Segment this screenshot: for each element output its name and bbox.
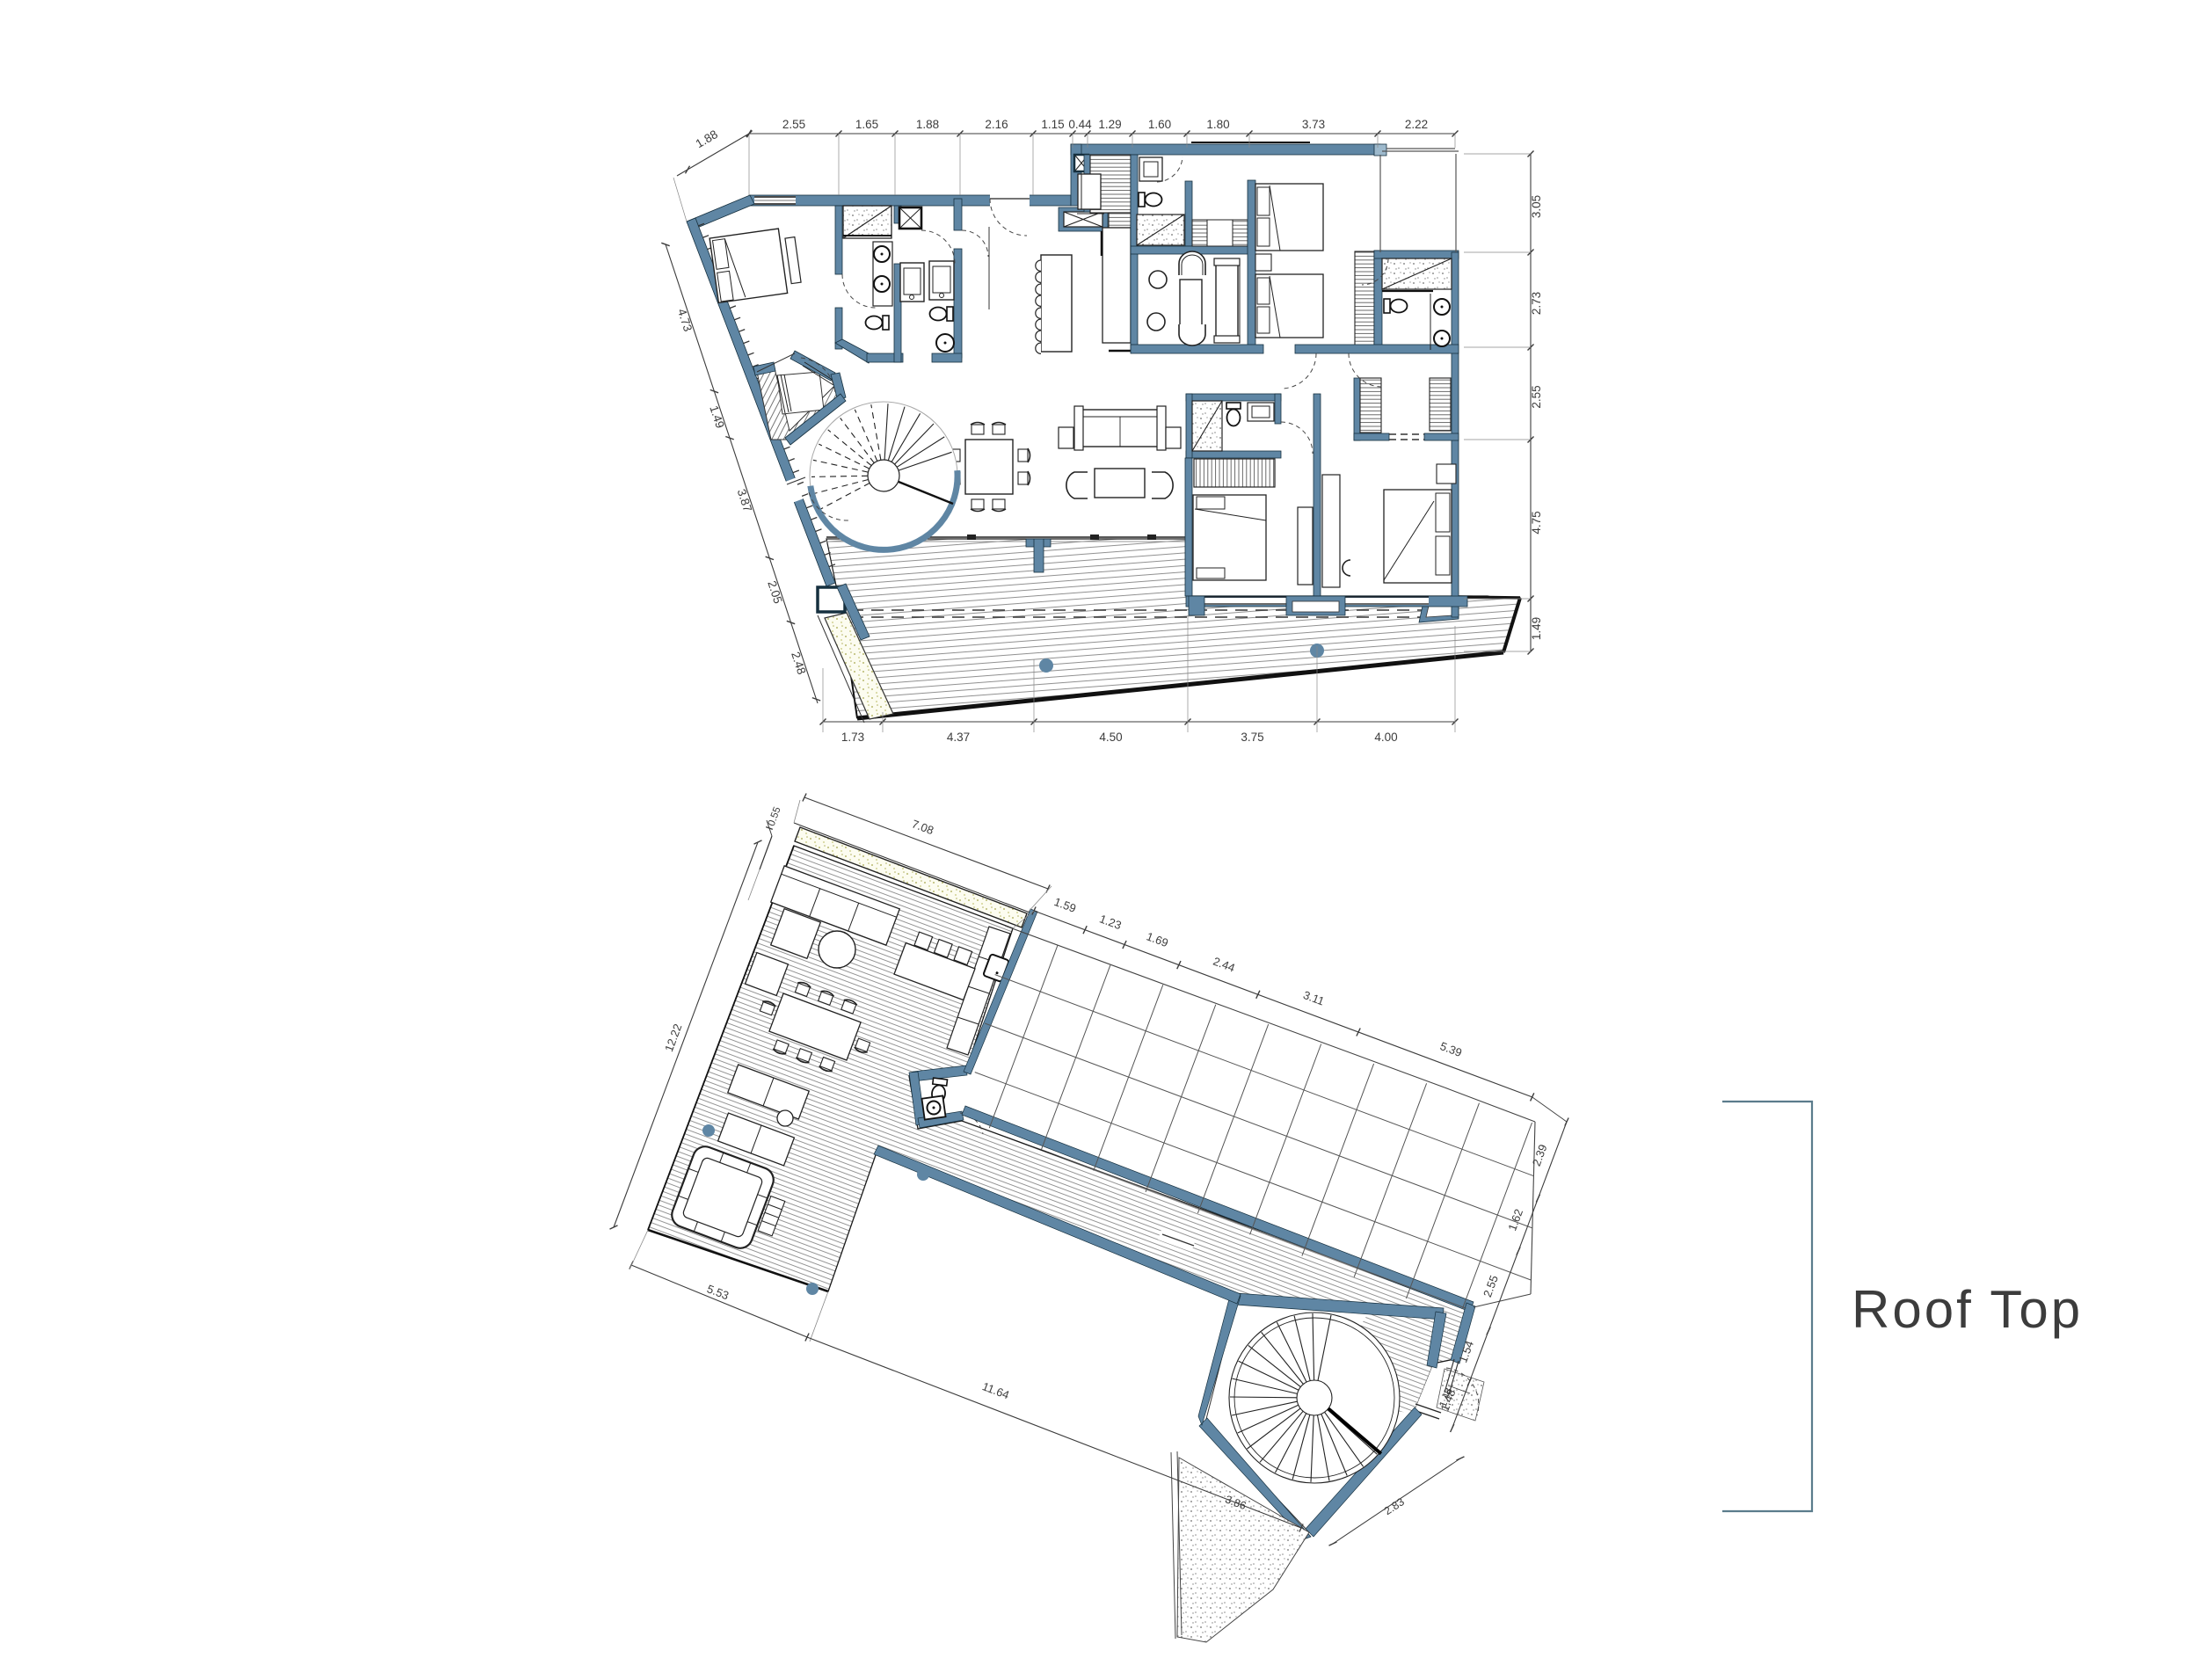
svg-text:1.80: 1.80 <box>1206 118 1229 131</box>
svg-text:2.55: 2.55 <box>1530 385 1543 408</box>
svg-text:2.55: 2.55 <box>782 118 805 131</box>
svg-text:1.15: 1.15 <box>1041 118 1064 131</box>
svg-text:4.75: 4.75 <box>1530 511 1543 534</box>
svg-text:1.29: 1.29 <box>1098 118 1121 131</box>
svg-text:2.73: 2.73 <box>1530 292 1543 315</box>
svg-text:3.73: 3.73 <box>1302 118 1325 131</box>
svg-text:3.05: 3.05 <box>1530 195 1543 218</box>
svg-text:4.50: 4.50 <box>1099 731 1122 744</box>
svg-text:1.73: 1.73 <box>841 731 864 744</box>
svg-text:4.00: 4.00 <box>1374 731 1397 744</box>
svg-text:1.60: 1.60 <box>1148 118 1171 131</box>
svg-text:2.16: 2.16 <box>985 118 1008 131</box>
svg-text:1.65: 1.65 <box>855 118 878 131</box>
svg-text:3.75: 3.75 <box>1241 731 1263 744</box>
svg-text:1.88: 1.88 <box>916 118 939 131</box>
svg-text:2.22: 2.22 <box>1405 118 1428 131</box>
svg-text:0.44: 0.44 <box>1068 118 1092 131</box>
svg-text:4.37: 4.37 <box>947 731 970 744</box>
svg-text:1.49: 1.49 <box>1530 617 1543 640</box>
svg-text:Roof Top: Roof Top <box>1852 1280 2083 1339</box>
